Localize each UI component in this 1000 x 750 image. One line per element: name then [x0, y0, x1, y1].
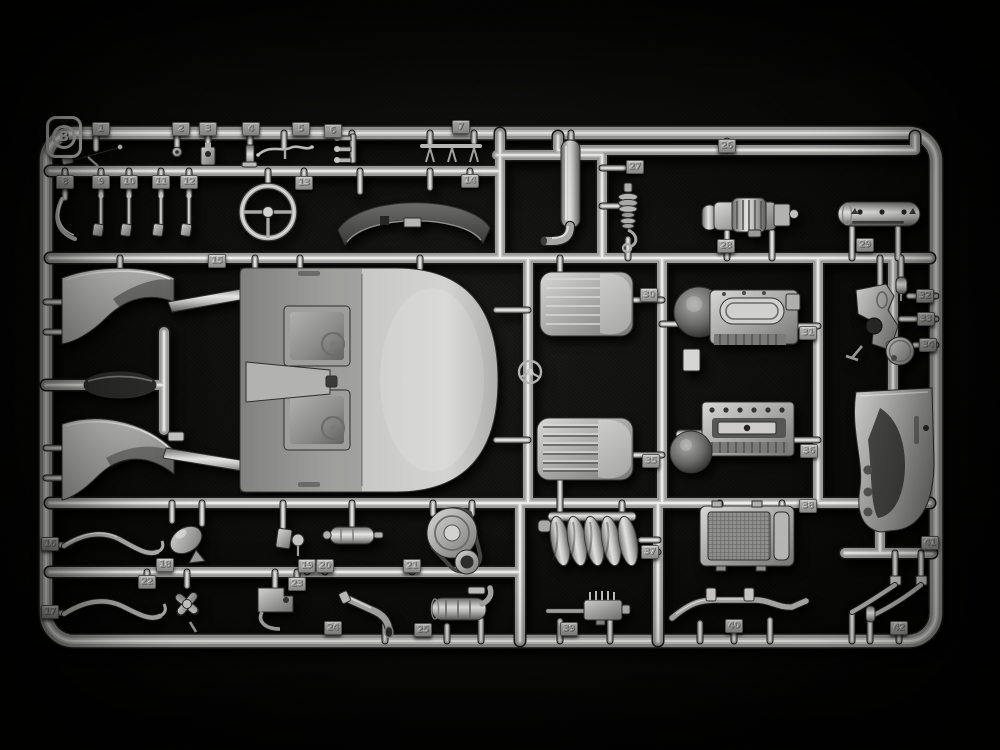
part-latch-block: [201, 143, 215, 165]
part-interior-tub: [240, 268, 498, 492]
sprue-letter-ring: B: [52, 125, 76, 149]
part-pull-rod-16: [64, 533, 163, 553]
part-perforated-cylinder: [838, 202, 920, 226]
part-seat-back-35: [537, 418, 633, 480]
part-bracket-with-hose: [258, 588, 293, 629]
part-linkage-rods: [852, 576, 927, 622]
part-inner-fender-front: [62, 268, 174, 344]
sprue-letter-plate: B: [46, 116, 82, 158]
part-plate-blank: [683, 349, 700, 371]
part-radiator: [700, 501, 794, 571]
part-muffler-cylinder: [431, 587, 490, 620]
part-cooling-fan: [174, 591, 201, 632]
sprue-photo: 1234567891011121314151617181920212223242…: [0, 0, 1000, 750]
part-pedal-levers: [92, 194, 192, 237]
part-grommet: [172, 147, 182, 157]
part-stabilizer-bar: [672, 588, 806, 618]
part-exhaust-manifold: [538, 512, 641, 567]
part-pulley-assembly: [427, 508, 480, 574]
part-fork-fitting: [334, 134, 356, 163]
part-engine-block: [674, 287, 800, 345]
part-pull-rod-17: [64, 601, 165, 617]
part-starter-motor: [323, 527, 383, 544]
part-curved-lever: [57, 199, 75, 239]
part-dashboard-cowl: [338, 203, 490, 245]
sprue-runner-art: [0, 0, 1000, 750]
part-generator: [702, 198, 799, 237]
part-seat-back-30: [540, 272, 633, 336]
part-engine-crankcase: [670, 402, 794, 473]
part-dark-pad: [84, 372, 156, 398]
part-round-disc: [886, 337, 914, 365]
part-steering-wheel: [242, 186, 294, 238]
part-exhaust-pipe: [338, 590, 393, 637]
part-mount-plate: [276, 528, 304, 556]
sprue-letter: B: [59, 130, 69, 145]
part-pedal-bar: [422, 146, 480, 162]
part-firewall-cowl: [854, 388, 934, 532]
part-small-bracket: [242, 145, 257, 167]
